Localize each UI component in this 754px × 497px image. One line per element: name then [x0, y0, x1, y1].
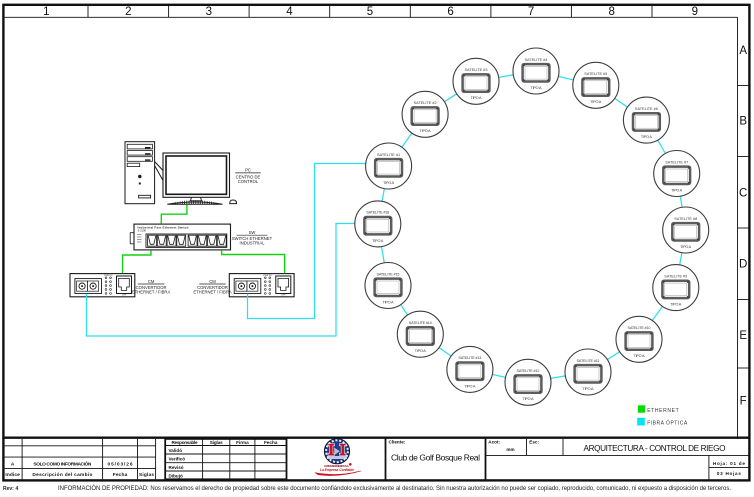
svg-text:TIPO A: TIPO A: [641, 135, 652, 139]
svg-text:TIPO A: TIPO A: [372, 239, 383, 243]
svg-text:Firma: Firma: [236, 440, 249, 445]
svg-text:SATELITE #14: SATELITE #14: [409, 321, 432, 325]
svg-text:SATELITE #7: SATELITE #7: [665, 160, 688, 164]
svg-text:Siglas: Siglas: [139, 472, 154, 478]
svg-text:Dibujó: Dibujó: [169, 473, 183, 478]
svg-text:Fecha: Fecha: [113, 472, 128, 478]
svg-text:TIPO A: TIPO A: [471, 96, 482, 100]
svg-text:9: 9: [692, 6, 698, 18]
svg-text:La Empresa Confiable: La Empresa Confiable: [320, 468, 354, 472]
svg-text:E: E: [739, 330, 747, 342]
svg-text:ARQUITECTURA - CONTROL DE RIEG: ARQUITECTURA - CONTROL DE RIEGO: [584, 444, 726, 453]
svg-text:SATELITE #16: SATELITE #16: [366, 211, 389, 215]
svg-text:S-2108: S-2108: [138, 229, 147, 233]
svg-text:8: 8: [608, 6, 614, 18]
svg-text:TIPO A: TIPO A: [523, 397, 534, 401]
svg-text:Club de Golf Bosque Real: Club de Golf Bosque Real: [391, 452, 480, 462]
svg-text:7: 7: [528, 6, 534, 18]
svg-text:SATELITE #11: SATELITE #11: [577, 359, 600, 363]
svg-text:05/03/26: 05/03/26: [108, 461, 133, 467]
svg-text:SATELITE #13: SATELITE #13: [458, 356, 481, 360]
svg-text:ETHERNET / FIBRA: ETHERNET / FIBRA: [132, 289, 171, 294]
svg-text:SATELITE #10: SATELITE #10: [628, 326, 651, 330]
svg-text:TIPO A: TIPO A: [670, 303, 681, 307]
svg-text:Indice: Indice: [5, 472, 20, 478]
svg-text:03 Hojas: 03 Hojas: [717, 471, 741, 476]
svg-text:5: 5: [367, 6, 373, 18]
svg-text:TIPO A: TIPO A: [464, 384, 475, 388]
svg-text:SATELITE #3: SATELITE #3: [465, 68, 488, 72]
svg-text:CM: CM: [209, 279, 216, 284]
svg-text:mm: mm: [506, 447, 514, 452]
svg-text:PWR FX: PWR FX: [263, 275, 272, 277]
svg-text:ETHERNET / FIBRA: ETHERNET / FIBRA: [193, 289, 232, 294]
svg-text:PWR FX: PWR FX: [104, 275, 113, 277]
svg-text:4: 4: [286, 6, 293, 18]
svg-text:Rev:: Rev:: [3, 486, 14, 492]
svg-text:Hoja: 01 de: Hoja: 01 de: [713, 461, 745, 466]
svg-text:SATELITE #4: SATELITE #4: [525, 58, 548, 62]
svg-text:Siglas: Siglas: [210, 440, 223, 445]
svg-text:TIPO A: TIPO A: [415, 349, 426, 353]
svg-text:Fecha: Fecha: [264, 440, 278, 445]
svg-text:Responsable: Responsable: [172, 440, 198, 445]
svg-text:TIPO A: TIPO A: [531, 86, 542, 90]
svg-text:INFORMACIÓN DE PROPIEDAD: Nos: INFORMACIÓN DE PROPIEDAD: Nos reservamos…: [58, 485, 731, 492]
svg-text:SATELITE #9: SATELITE #9: [664, 274, 687, 278]
svg-text:C: C: [739, 188, 747, 200]
svg-text:CM: CM: [148, 279, 155, 284]
svg-text:TIPO A: TIPO A: [383, 181, 394, 185]
svg-text:SATELITE #12: SATELITE #12: [517, 369, 540, 373]
svg-text:SATELITE #1: SATELITE #1: [377, 153, 400, 157]
svg-text:SATELITE #6: SATELITE #6: [635, 107, 658, 111]
svg-text:Acot:: Acot:: [488, 440, 500, 445]
svg-text:CONTROL: CONTROL: [238, 179, 259, 184]
svg-text:4: 4: [16, 486, 19, 492]
svg-text:Revisó: Revisó: [169, 465, 184, 470]
svg-text:TIPO A: TIPO A: [680, 245, 691, 249]
svg-text:Validó: Validó: [169, 448, 183, 453]
svg-text:Esc:: Esc:: [529, 440, 539, 445]
svg-text:UTP: UTP: [281, 295, 286, 297]
svg-text:UTP: UTP: [122, 295, 127, 297]
svg-text:Cliente:: Cliente:: [389, 440, 406, 445]
svg-text:2: 2: [125, 6, 131, 18]
svg-text:SATELITE #15: SATELITE #15: [377, 272, 400, 276]
svg-text:PC: PC: [245, 168, 251, 173]
svg-text:3: 3: [206, 6, 212, 18]
svg-text:D: D: [739, 259, 747, 271]
svg-text:ETHERNET: ETHERNET: [647, 408, 679, 414]
svg-text:F: F: [740, 396, 747, 408]
svg-text:SW: SW: [249, 230, 256, 235]
svg-text:Verificó: Verificó: [169, 456, 186, 461]
svg-text:TIPO A: TIPO A: [583, 387, 594, 391]
svg-text:A: A: [739, 45, 747, 57]
svg-text:A: A: [11, 461, 15, 467]
svg-text:B: B: [739, 116, 747, 128]
svg-text:TIPO A: TIPO A: [590, 100, 601, 104]
svg-text:TIPO A: TIPO A: [671, 188, 682, 192]
svg-text:1: 1: [43, 6, 49, 18]
svg-text:6: 6: [447, 6, 453, 18]
svg-text:TIPO A: TIPO A: [420, 129, 431, 133]
svg-text:TIPO A: TIPO A: [634, 354, 645, 358]
svg-text:SATELITE #8: SATELITE #8: [674, 217, 697, 221]
svg-text:INDUSTRIAL: INDUSTRIAL: [240, 241, 266, 246]
svg-text:SATELITE #2: SATELITE #2: [414, 101, 437, 105]
svg-text:FIBRA ÓPTICA: FIBRA ÓPTICA: [647, 419, 688, 426]
svg-text:TIPO A: TIPO A: [383, 300, 394, 304]
svg-text:SATELITE #5: SATELITE #5: [584, 72, 607, 76]
svg-text:Descripción del cambio: Descripción del cambio: [32, 472, 92, 478]
